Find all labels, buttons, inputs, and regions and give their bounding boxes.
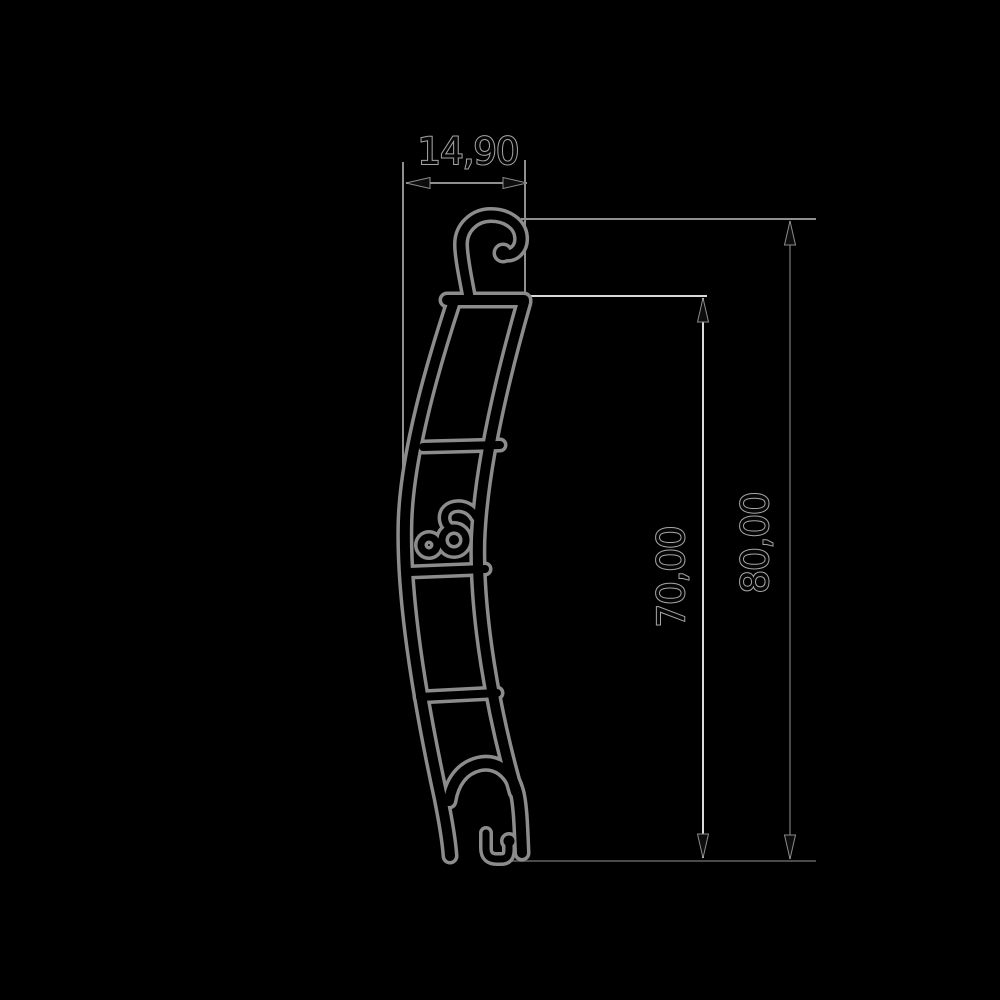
width-arrow-right xyxy=(503,178,527,189)
width-arrow-left xyxy=(406,178,430,189)
wall-knob xyxy=(421,537,437,553)
technical-drawing-canvas: 14,90 70,00 80,00 xyxy=(0,0,1000,1000)
inner-height-dimension-label: 70,00 xyxy=(650,527,693,628)
cross-web-2 xyxy=(410,569,485,572)
bottom-lip-tip xyxy=(507,839,512,844)
outer-height-arrow-top xyxy=(785,221,796,245)
cross-web-1 xyxy=(423,445,500,447)
outer-height-dimension-label: 80,00 xyxy=(734,493,777,594)
width-dimension-label: 14,90 xyxy=(418,130,519,173)
profile-drawing-svg: 14,90 70,00 80,00 xyxy=(0,0,1000,1000)
cross-web-3 xyxy=(420,693,497,697)
inner-height-arrow-top xyxy=(698,298,709,322)
top-hook-tip xyxy=(500,250,506,256)
outer-height-arrow-bottom xyxy=(785,835,796,859)
inner-height-arrow-bottom xyxy=(698,834,709,858)
top-hook-curl xyxy=(461,215,521,297)
